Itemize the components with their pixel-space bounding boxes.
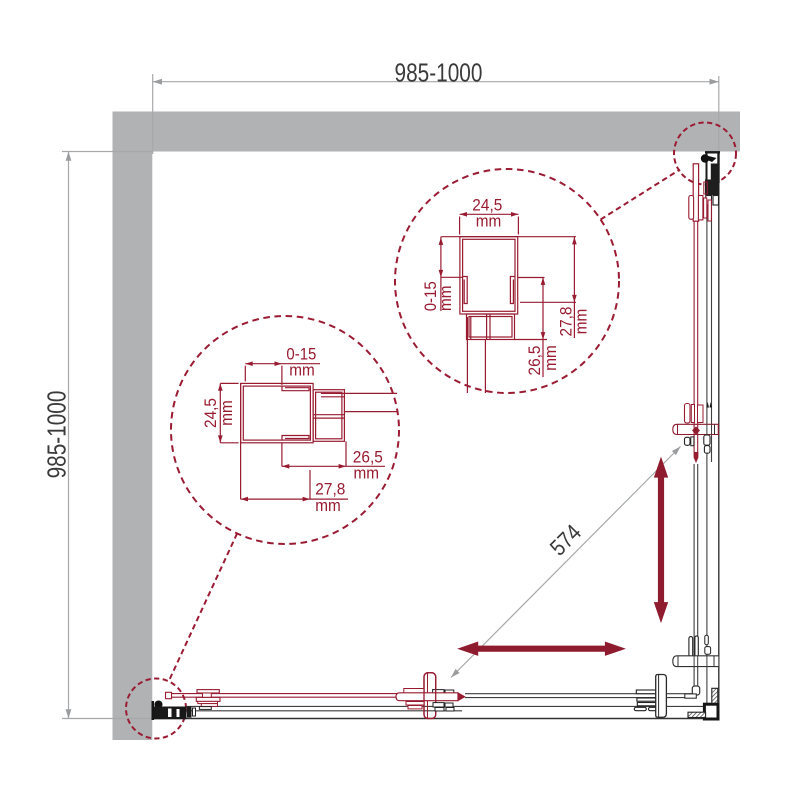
svg-text:985-1000: 985-1000 xyxy=(42,391,71,479)
svg-text:mm: mm xyxy=(289,361,315,380)
svg-text:mm: mm xyxy=(572,309,591,335)
svg-text:mm: mm xyxy=(217,400,236,426)
svg-text:985-1000: 985-1000 xyxy=(395,58,483,87)
svg-text:mm: mm xyxy=(354,463,380,482)
svg-text:574: 574 xyxy=(545,519,586,560)
svg-text:mm: mm xyxy=(315,496,341,515)
svg-text:mm: mm xyxy=(436,286,455,312)
svg-text:mm: mm xyxy=(476,212,502,231)
svg-text:mm: mm xyxy=(541,345,560,371)
